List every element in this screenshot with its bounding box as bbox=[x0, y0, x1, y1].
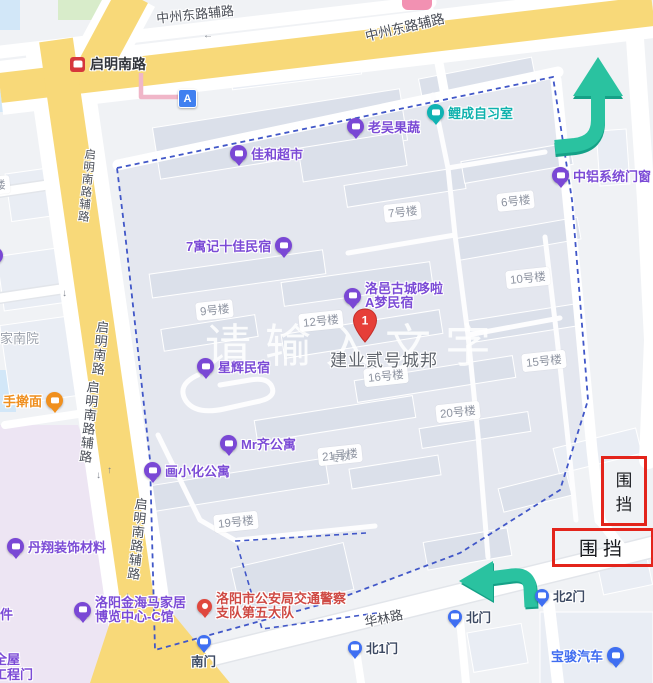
shop-bag-icon bbox=[347, 118, 364, 135]
barrier-annotation-vertical: 围挡 bbox=[601, 456, 647, 526]
poi-jinhaima-expo[interactable]: 洛阳金海马家居 博览中心-C馆 bbox=[74, 596, 186, 625]
study-icon bbox=[427, 104, 444, 121]
shop-bag-icon bbox=[552, 167, 569, 184]
gate-south[interactable]: 南门 bbox=[191, 635, 216, 670]
bed-icon bbox=[144, 462, 161, 479]
poi-shouganmian-noodles[interactable]: 手擀面 bbox=[3, 391, 63, 410]
police-pin-icon bbox=[197, 599, 212, 614]
gate-north1[interactable]: 北1门 bbox=[348, 638, 398, 657]
svg-text:↑: ↑ bbox=[107, 465, 112, 476]
svg-text:←: ← bbox=[203, 30, 213, 41]
selected-location-name: 建业贰号城邦 bbox=[330, 346, 438, 371]
shop-bag-icon bbox=[230, 145, 247, 162]
bed-icon bbox=[220, 435, 237, 452]
poi-zhonglv-windows[interactable]: 中铝系统门窗 bbox=[552, 166, 651, 185]
poi-qiyuji-hostel[interactable]: 7寓记十佳民宿 bbox=[186, 236, 292, 255]
poi-baojun-auto[interactable]: 宝骏汽车 bbox=[551, 646, 624, 665]
gate-icon bbox=[535, 589, 549, 603]
gate-north2[interactable]: 北2门 bbox=[535, 586, 585, 605]
route-badge bbox=[402, 0, 432, 10]
bed-icon bbox=[344, 288, 361, 305]
building-pill-partial[interactable]: 楼 bbox=[0, 175, 10, 195]
shop-bag-icon bbox=[7, 538, 24, 555]
gate-icon bbox=[348, 641, 362, 655]
gate-icon bbox=[197, 635, 211, 649]
point-a-marker[interactable]: A bbox=[178, 89, 197, 108]
map-canvas[interactable]: ↓ ↓ ↑ ↑ ← 请输入文字 中州东路辅路 中州东路辅路 bbox=[0, 0, 653, 683]
shop-bag-icon bbox=[74, 602, 91, 619]
metro-icon bbox=[70, 57, 85, 72]
shop-bag-icon bbox=[0, 247, 3, 264]
poi-laowu-fruits[interactable]: 老吴果蔬 bbox=[347, 117, 420, 136]
svg-text:↓: ↓ bbox=[96, 470, 101, 481]
bed-icon bbox=[197, 358, 214, 375]
label-jianannyuan: 家南院 bbox=[0, 328, 39, 347]
bed-icon bbox=[275, 237, 292, 254]
gate-north[interactable]: 北门 bbox=[448, 607, 491, 626]
restaurant-icon bbox=[46, 392, 63, 409]
metro-station-label: 启明南路 bbox=[90, 54, 146, 74]
pin-badge: 1 bbox=[362, 314, 369, 328]
svg-text:↓: ↓ bbox=[62, 288, 67, 299]
poi-traffic-police[interactable]: 洛阳市公安局交通警察 支队第五大队 bbox=[197, 592, 346, 621]
gate-icon bbox=[448, 610, 462, 624]
poi-xinghui-hostel[interactable]: 星辉民宿 bbox=[197, 357, 270, 376]
poi-huaxiaohua-apartment[interactable]: 画小化公寓 bbox=[144, 461, 230, 480]
metro-station-qiming[interactable]: 启明南路 bbox=[70, 54, 146, 74]
selected-location-pin[interactable]: 1 bbox=[352, 308, 378, 349]
label-partial-jian: 件 bbox=[0, 604, 13, 623]
poi-luoyi-hostel[interactable]: 洛邑古城哆啦 A梦民宿 bbox=[344, 282, 443, 311]
poi-danxiang-decoration[interactable]: 丹翔装饰材料 bbox=[7, 537, 106, 556]
label-partial-gongchengmen: 工程门 bbox=[0, 664, 33, 683]
poi-mrqi-apartment[interactable]: Mr齐公寓 bbox=[220, 434, 296, 453]
poi-licheng-studyroom[interactable]: 鲤成自习室 bbox=[427, 103, 513, 122]
barrier-annotation-horizontal: 围挡 bbox=[552, 528, 653, 567]
poi-partial-jia: 家 bbox=[0, 247, 3, 284]
car-icon bbox=[607, 647, 624, 664]
poi-jiahe-supermarket[interactable]: 佳和超市 bbox=[230, 144, 303, 163]
